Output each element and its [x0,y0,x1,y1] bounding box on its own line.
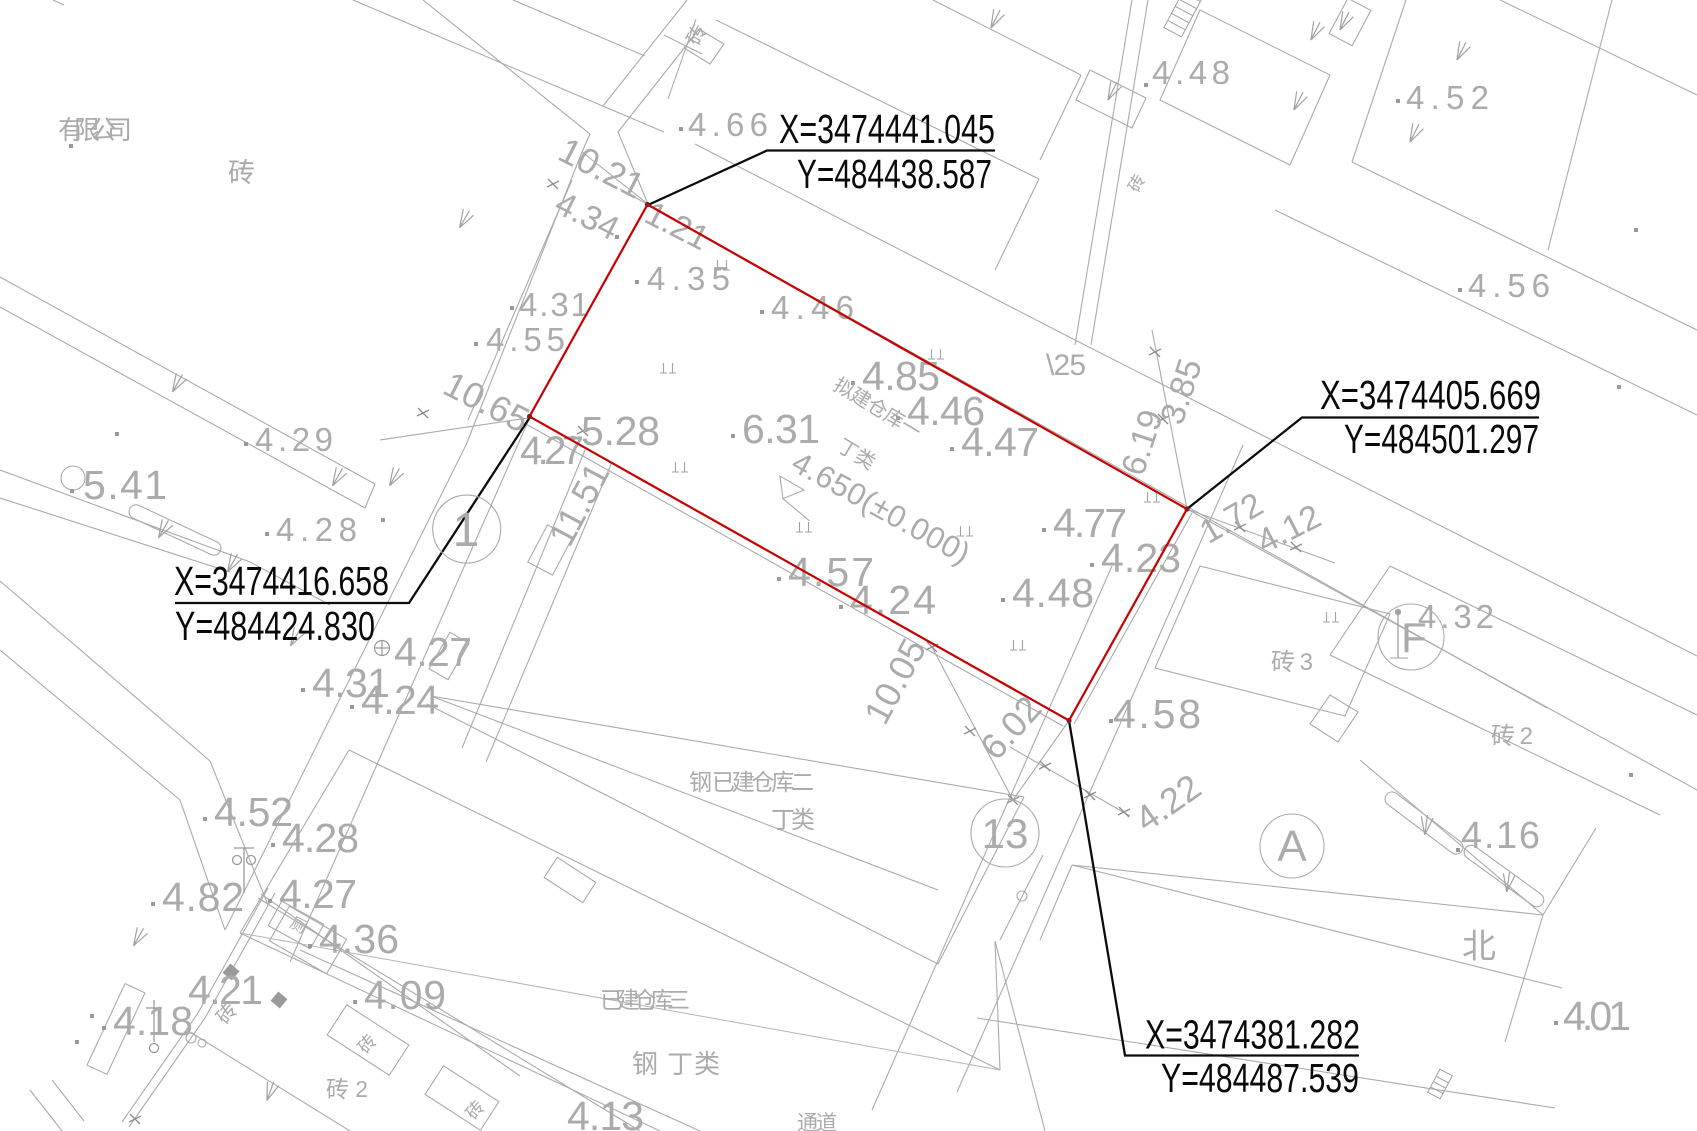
svg-text:4.09: 4.09 [364,972,446,1018]
svg-text:5.41: 5.41 [83,462,167,508]
svg-text:4.46: 4.46 [771,289,854,326]
svg-text:砖: 砖 [228,158,255,188]
svg-text:13: 13 [982,810,1029,857]
svg-text:4.18: 4.18 [113,998,193,1044]
svg-text:钢 已建仓库二: 钢 已建仓库二 [689,769,814,795]
svg-text:4.48: 4.48 [1152,54,1230,91]
svg-text:丁类: 丁类 [771,807,815,834]
svg-text:4.36: 4.36 [319,916,399,962]
svg-text:4.24: 4.24 [361,677,439,723]
svg-text:砖2: 砖2 [326,1076,368,1102]
svg-text:5.28: 5.28 [581,408,660,454]
svg-text:砖3: 砖3 [1271,649,1313,676]
svg-text:4.85: 4.85 [862,353,940,399]
svg-text:4.55: 4.55 [486,321,565,358]
svg-text:4.82: 4.82 [162,874,244,920]
svg-text:Y=484501.297: Y=484501.297 [1344,416,1539,462]
svg-text:X=3474441.045: X=3474441.045 [779,106,995,152]
svg-text:4.27: 4.27 [279,871,357,917]
svg-text:4.01: 4.01 [1563,993,1631,1039]
svg-text:4.66: 4.66 [688,106,768,143]
svg-text:4.32: 4.32 [1418,598,1494,635]
svg-text:1: 1 [453,504,480,557]
svg-text:砖2: 砖2 [1491,723,1533,750]
svg-text:X=3474416.658: X=3474416.658 [174,558,389,604]
svg-text:Y=484424.830: Y=484424.830 [175,603,375,649]
svg-text:4.28: 4.28 [282,815,359,861]
svg-text:X=3474405.669: X=3474405.669 [1320,372,1541,418]
svg-text:4.13: 4.13 [567,1093,644,1131]
svg-text:Y=484487.539: Y=484487.539 [1161,1055,1359,1101]
svg-text:4.31: 4.31 [519,286,589,323]
svg-text:已建仓库三: 已建仓库三 [600,987,690,1013]
svg-text:4.52: 4.52 [1406,79,1489,116]
svg-text:4.47: 4.47 [961,419,1039,465]
svg-text:\25: \25 [1046,349,1086,382]
svg-text:北: 北 [1462,928,1496,966]
svg-text:有限公司: 有限公司 [58,115,132,145]
svg-text:A: A [1277,822,1307,871]
svg-text:4.48: 4.48 [1012,570,1094,616]
svg-text:4.58: 4.58 [1113,691,1201,737]
svg-text:通道: 通道 [797,1112,837,1131]
svg-text:4.56: 4.56 [1468,267,1550,304]
svg-text:4.27: 4.27 [520,429,584,473]
svg-text:X=3474381.282: X=3474381.282 [1145,1012,1360,1058]
svg-text:Y=484438.587: Y=484438.587 [797,151,992,197]
svg-text:4.27: 4.27 [394,629,472,675]
svg-text:4.16: 4.16 [1461,815,1540,857]
svg-text:4.28: 4.28 [276,511,357,548]
svg-text:钢 丁类: 钢 丁类 [632,1049,720,1079]
svg-text:4.24: 4.24 [850,577,936,623]
svg-text:4.35: 4.35 [647,260,730,297]
svg-text:4.29: 4.29 [255,421,333,458]
svg-text:6.31: 6.31 [742,406,820,452]
